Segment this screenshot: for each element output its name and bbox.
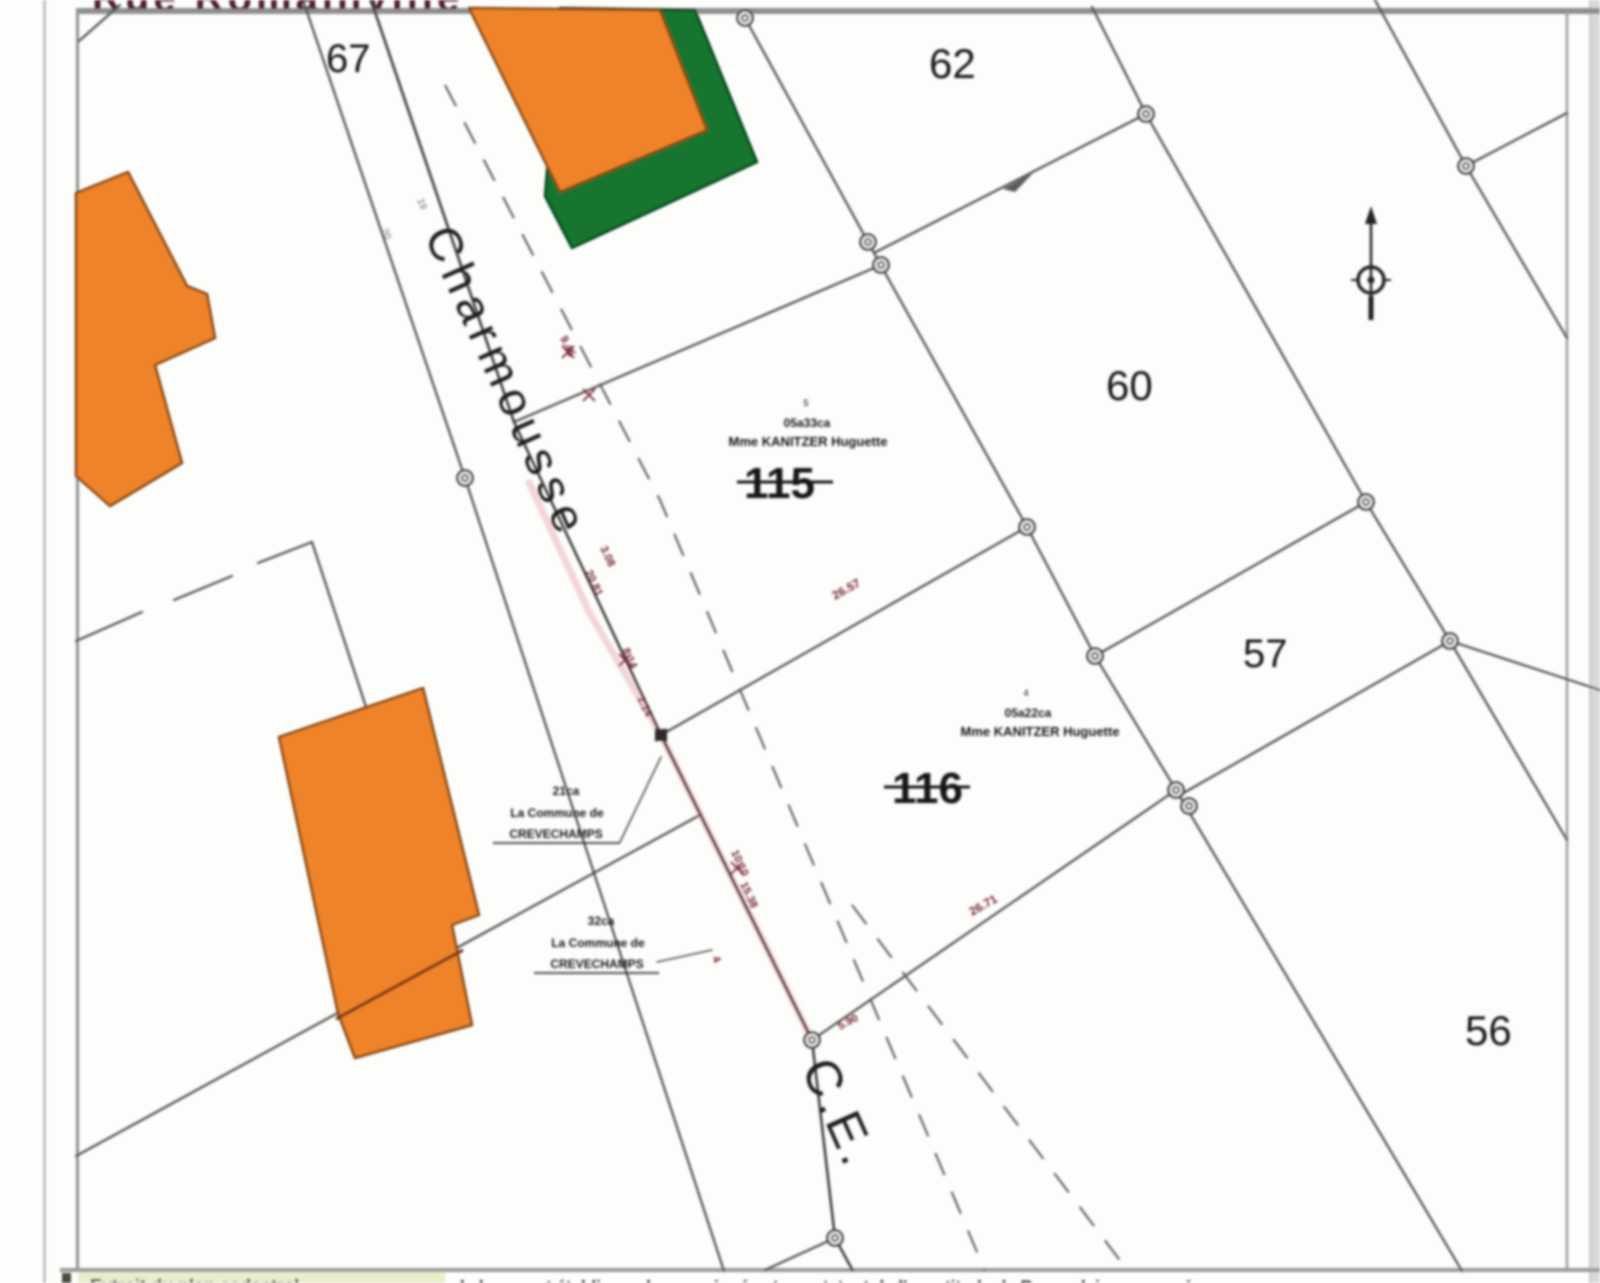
- svg-text:5: 5: [803, 398, 808, 408]
- svg-text:05a33ca: 05a33ca: [784, 416, 831, 430]
- svg-text:56: 56: [1465, 1007, 1512, 1054]
- svg-text:Extrait du plan cadastral: Extrait du plan cadastral: [90, 1276, 299, 1283]
- svg-text:32ca: 32ca: [588, 914, 615, 928]
- svg-text:60: 60: [1106, 362, 1153, 409]
- svg-text:67: 67: [326, 37, 371, 81]
- svg-text:CREVECHAMPS: CREVECHAMPS: [550, 957, 643, 971]
- svg-text:62: 62: [929, 40, 976, 87]
- svg-text:CREVECHAMPS: CREVECHAMPS: [509, 827, 602, 841]
- svg-text:Mme KANITZER Huguette: Mme KANITZER Huguette: [729, 434, 888, 449]
- svg-text:La Commune de: La Commune de: [510, 806, 604, 820]
- svg-text:la base, est établie par la so: la base, est établie par la soussignée e…: [460, 1277, 1193, 1283]
- svg-text:21ca: 21ca: [553, 784, 580, 798]
- svg-text:05a22ca: 05a22ca: [1005, 706, 1052, 720]
- svg-text:Mme KANITZER Huguette: Mme KANITZER Huguette: [961, 724, 1120, 739]
- svg-text:57: 57: [1243, 632, 1288, 676]
- svg-text:La Commune de: La Commune de: [551, 936, 645, 950]
- svg-text:4: 4: [1023, 688, 1028, 698]
